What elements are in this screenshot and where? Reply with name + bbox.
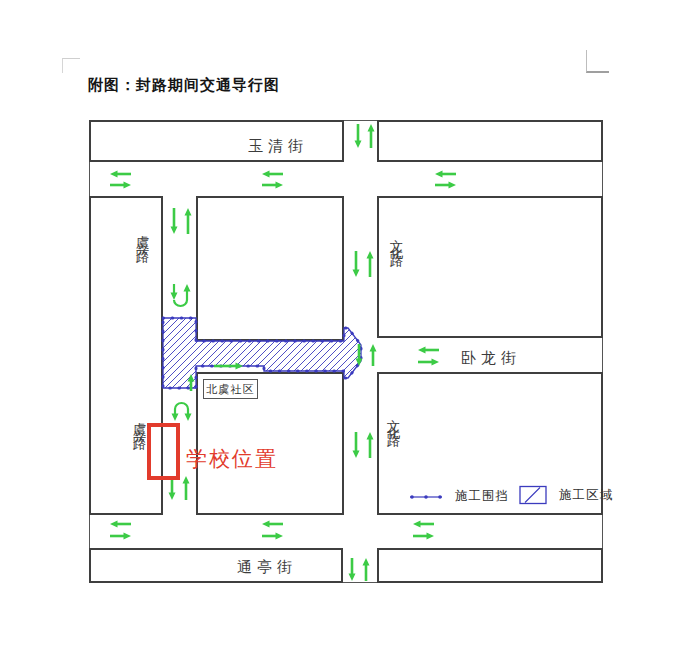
- city-block: [196, 196, 344, 341]
- construction-fence-icon: [409, 492, 443, 502]
- street-label-wolong: 卧龙街: [461, 349, 521, 368]
- school-location-label: 学校位置: [186, 445, 278, 473]
- page-corner-mark-top-right: [586, 50, 609, 73]
- street-label-tongting: 通亭街: [237, 558, 297, 577]
- city-block: [377, 196, 603, 338]
- street-label-yuxing-upper: 虞兴路: [134, 224, 152, 245]
- street-label-wenhua-lower: 文化路: [385, 408, 403, 429]
- construction-area-icon: [519, 485, 547, 505]
- city-block: [377, 120, 603, 162]
- legend-item-fence: 施工围挡: [409, 488, 509, 505]
- community-label-box: 北虞社区: [203, 379, 258, 399]
- street-label-wenhua-upper: 文化路: [388, 228, 406, 249]
- city-block: [377, 548, 603, 583]
- page-corner-mark-top-left: [62, 58, 80, 73]
- document-page: 附图：封路期间交通导行图 玉清街 卧龙街 通亭街 虞兴路 虞兴路 文化路 文化路…: [0, 0, 692, 664]
- school-location-marker: [147, 423, 180, 480]
- legend-fence-label: 施工围挡: [455, 488, 509, 505]
- street-label-yuqing: 玉清街: [248, 137, 308, 156]
- legend-item-area: 施工区域: [519, 485, 613, 505]
- city-block: [89, 548, 343, 583]
- figure-title: 附图：封路期间交通导行图: [88, 76, 280, 95]
- legend-area-label: 施工区域: [559, 487, 613, 504]
